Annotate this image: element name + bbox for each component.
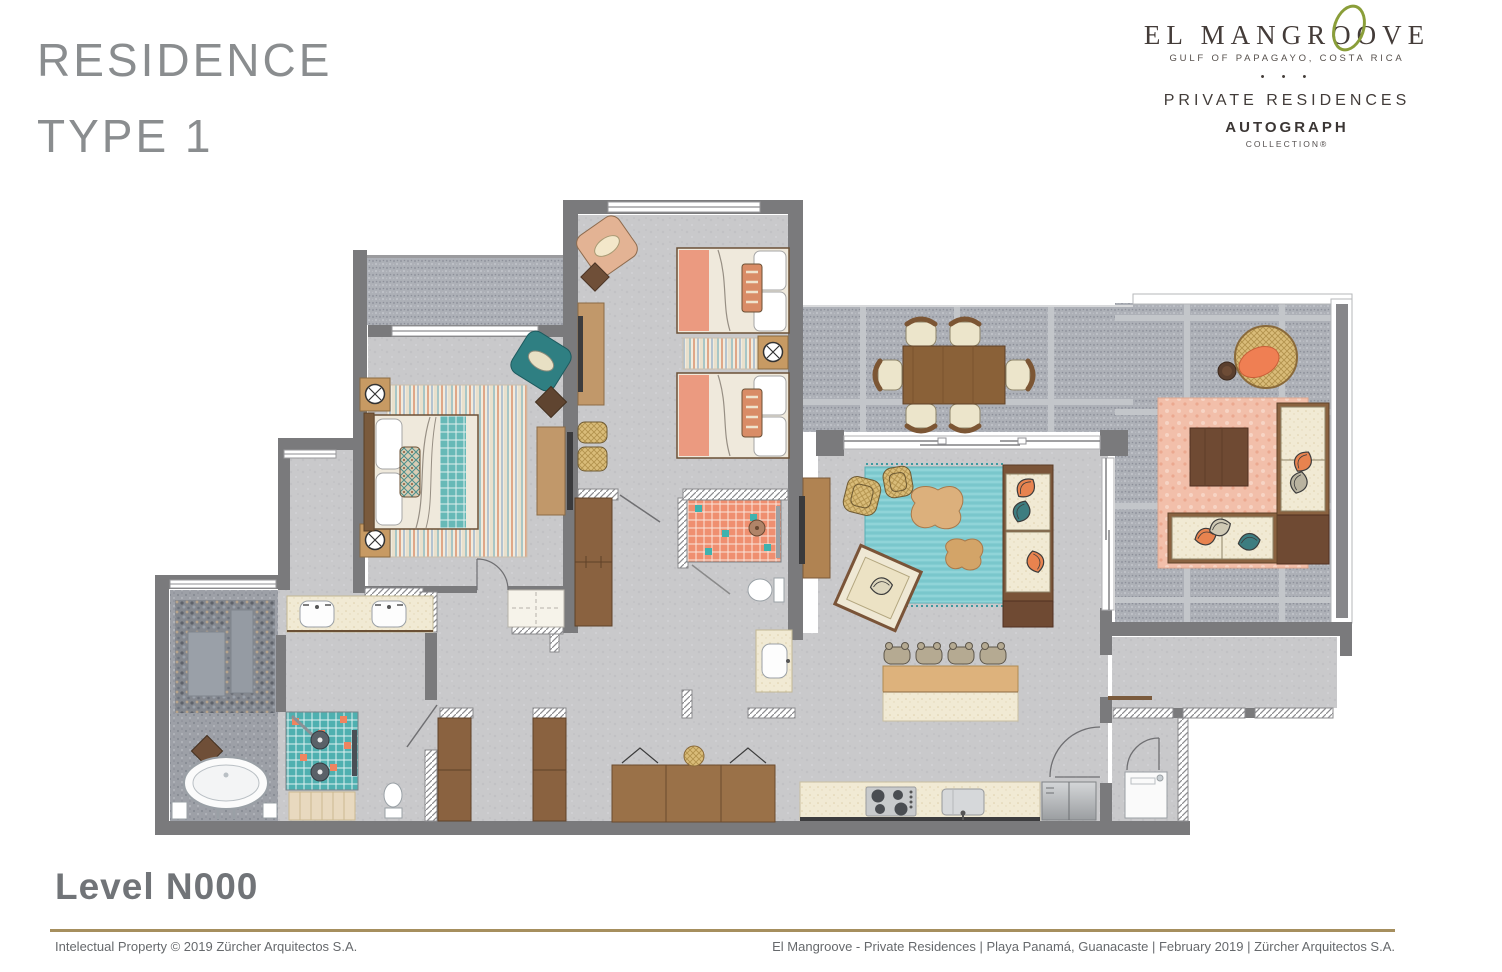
stone-slab: [231, 610, 253, 693]
entry-bench: [1108, 696, 1152, 700]
double-vanity: [287, 596, 433, 632]
planter-strip: [353, 257, 565, 325]
sliding-door-east: [1102, 458, 1114, 610]
footer-copyright: Intelectual Property © 2019 Zürcher Arqu…: [55, 939, 357, 954]
kitchen-island: [883, 666, 1018, 721]
rattan-pouf: [882, 465, 915, 499]
presentation-sheet: RESIDENCE TYPE 1 EL MANGROOVE GULF OF PA…: [0, 0, 1502, 972]
sliding-door-north: [844, 436, 1100, 449]
dining-table: [903, 346, 1005, 404]
sofa-side-table: [1003, 601, 1053, 627]
kitchen-counter: [800, 782, 1040, 821]
round-rattan-chair: [1234, 326, 1297, 388]
master-nightstand-north: [360, 378, 390, 411]
media-console: [803, 478, 830, 578]
tub-fixture: [172, 802, 187, 819]
rattan-pouf: [578, 422, 607, 443]
twin-bed-1: [677, 248, 789, 333]
toilet-master: [384, 783, 402, 818]
terrace-railing-top: [1133, 294, 1352, 304]
rattan-pouf: [578, 447, 607, 471]
bedroom2-nightstand: [758, 336, 788, 369]
outdoor-sofa-north: [1277, 403, 1329, 515]
level-label: Level N000: [55, 866, 258, 908]
living-tv: [799, 496, 805, 564]
outdoor-corner-table: [1277, 515, 1329, 564]
outdoor-sofa-west: [1168, 513, 1277, 563]
stone-slab: [188, 632, 225, 696]
twin-bed-2: [677, 373, 789, 458]
footer-divider: [50, 929, 1395, 932]
vanity-2: [756, 630, 792, 692]
tub-fixture: [263, 803, 277, 818]
master-shower: [286, 712, 358, 790]
outdoor-coffee-table: [1190, 428, 1248, 486]
terrace-railing-bar: [1336, 304, 1348, 618]
master-bed: [364, 413, 478, 531]
master-desk: [537, 427, 565, 515]
toilet-2: [748, 578, 784, 602]
shower-2-glass: [776, 506, 780, 558]
coffee-table-organic: [946, 539, 983, 570]
living-sofa: [1003, 465, 1053, 601]
floor-plan-drawing: [0, 0, 1502, 972]
master-tv: [567, 432, 573, 510]
bedroom2-tv: [578, 316, 583, 392]
coffee-table-organic: [911, 486, 963, 528]
footer-project-info: El Mangroove - Private Residences | Play…: [772, 939, 1395, 954]
bedroom2-runner-rug: [683, 338, 769, 369]
